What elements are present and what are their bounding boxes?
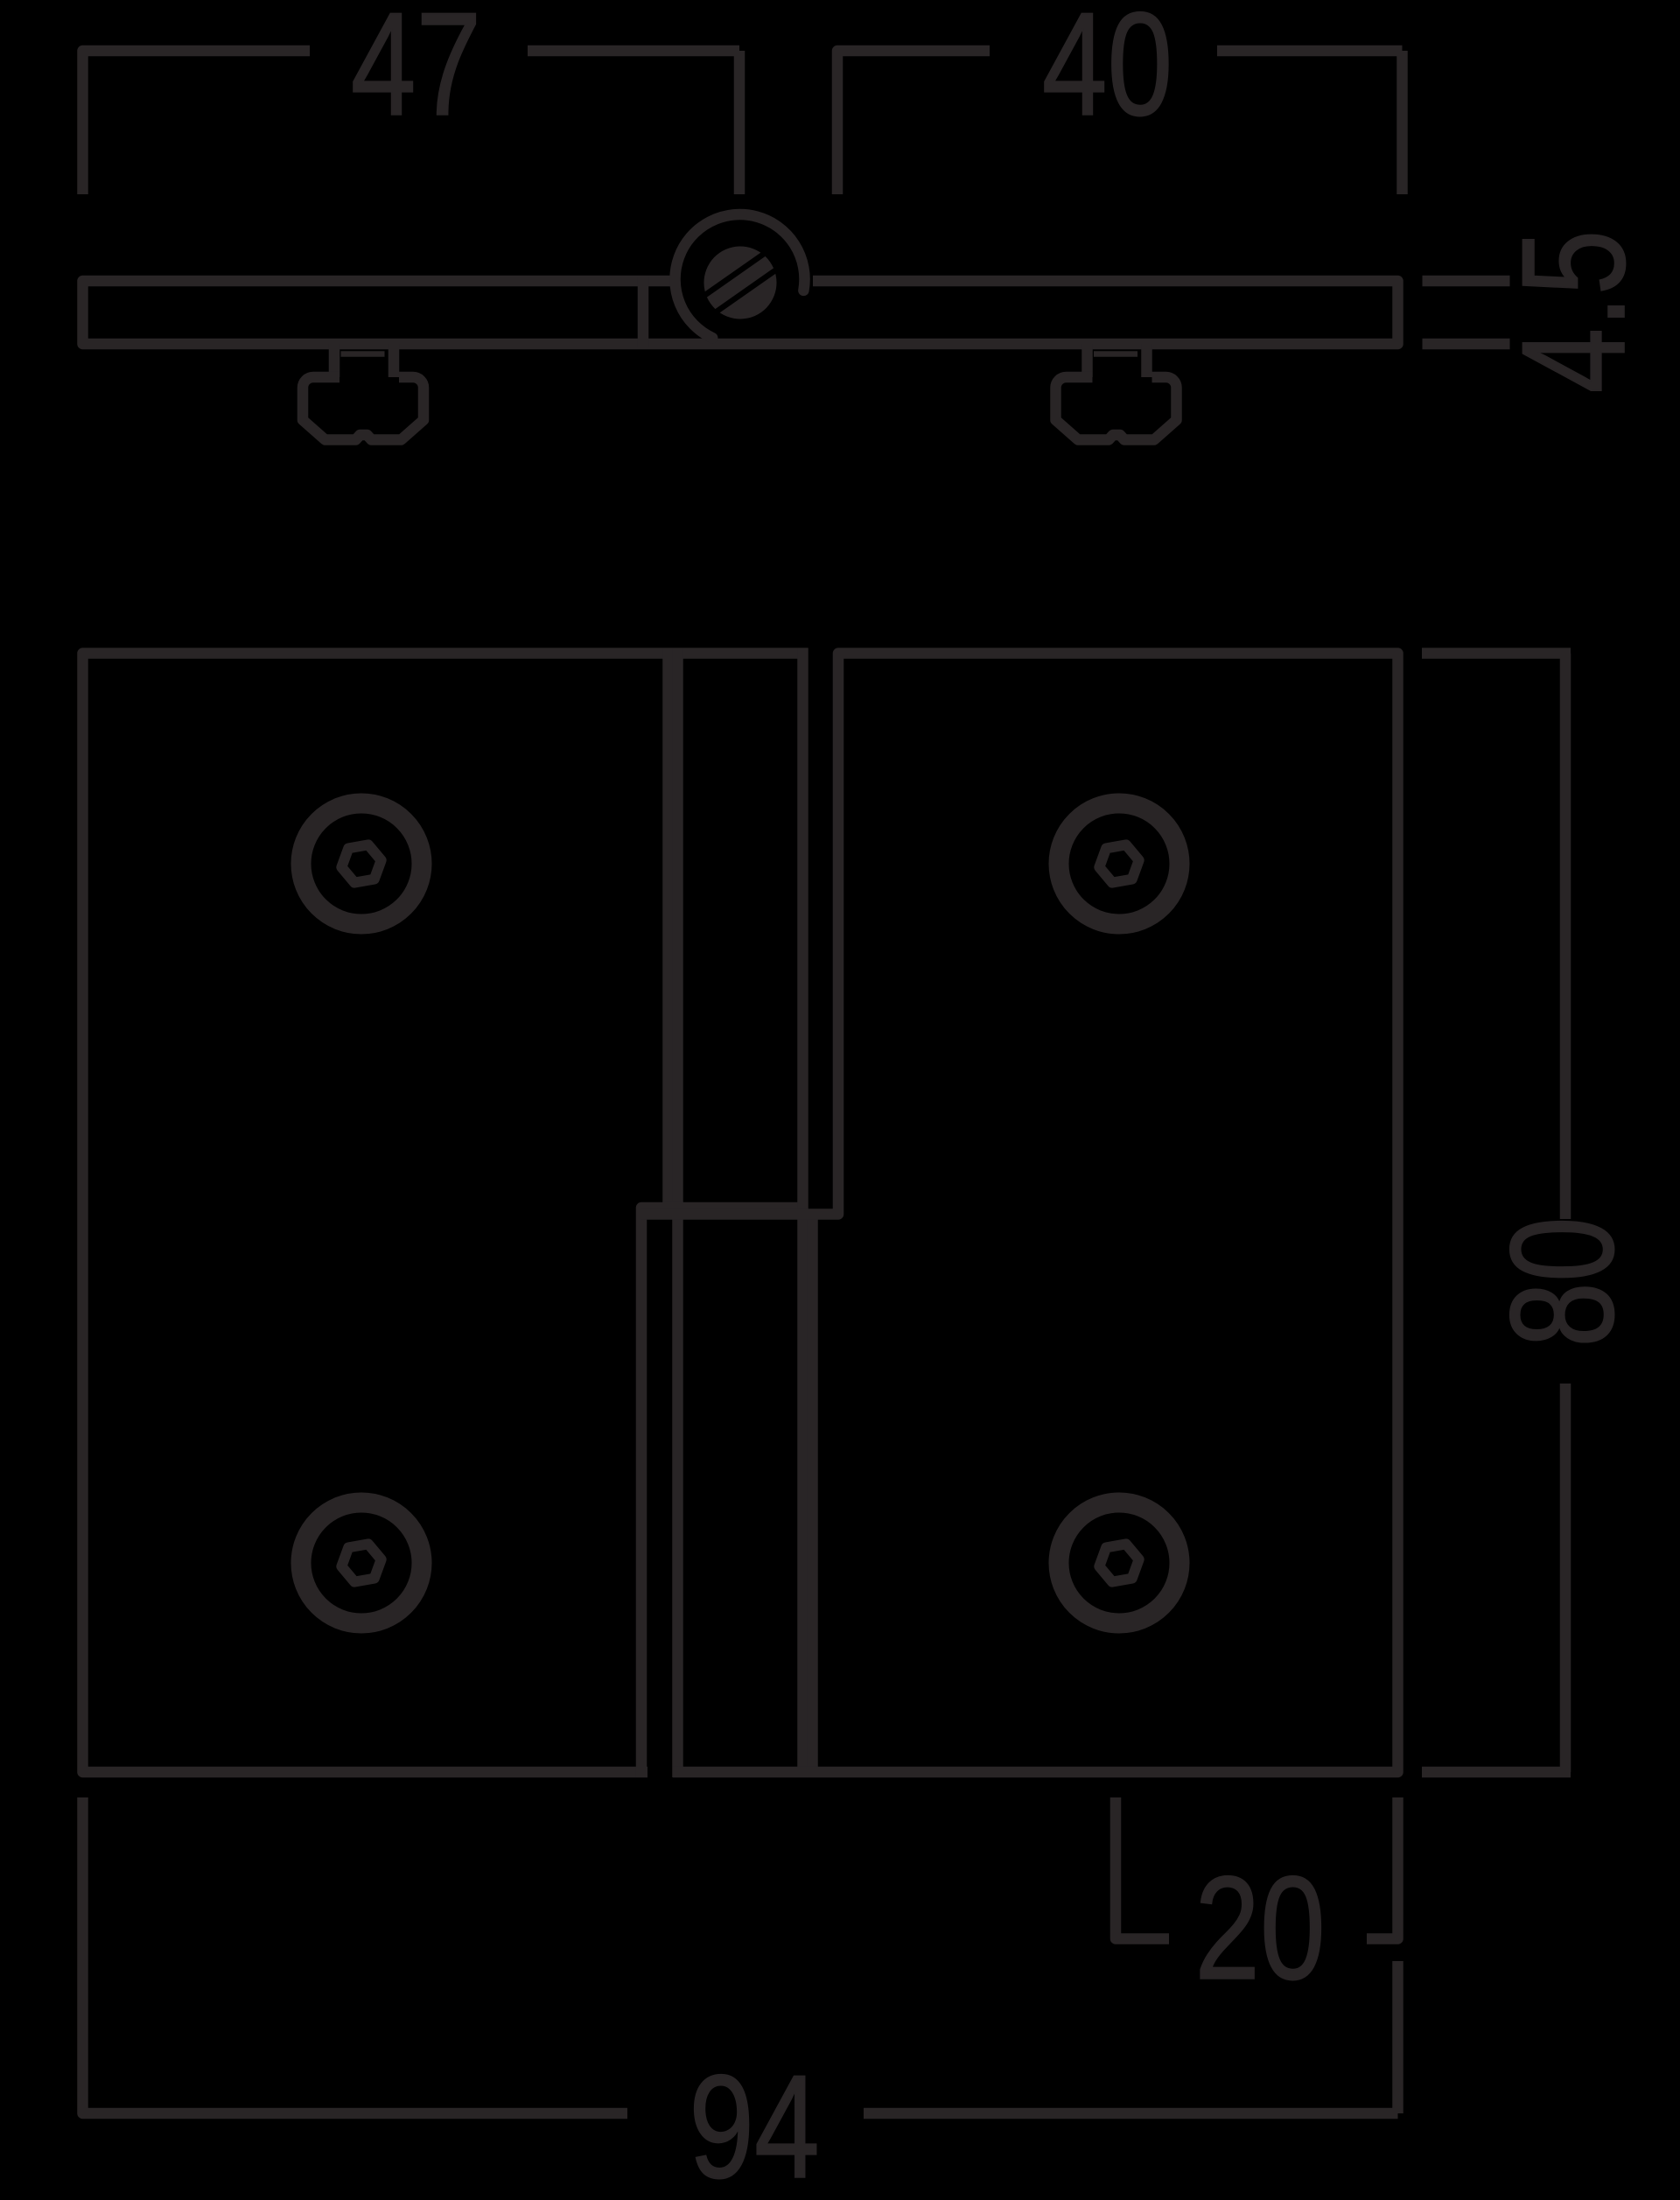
svg-text:94: 94 [689,2045,819,2200]
svg-text:4.5: 4.5 [1492,230,1656,394]
svg-text:40: 40 [1042,0,1172,146]
svg-text:47: 47 [351,0,481,146]
svg-text:20: 20 [1194,1846,1325,2011]
svg-text:80: 80 [1480,1216,1645,1347]
